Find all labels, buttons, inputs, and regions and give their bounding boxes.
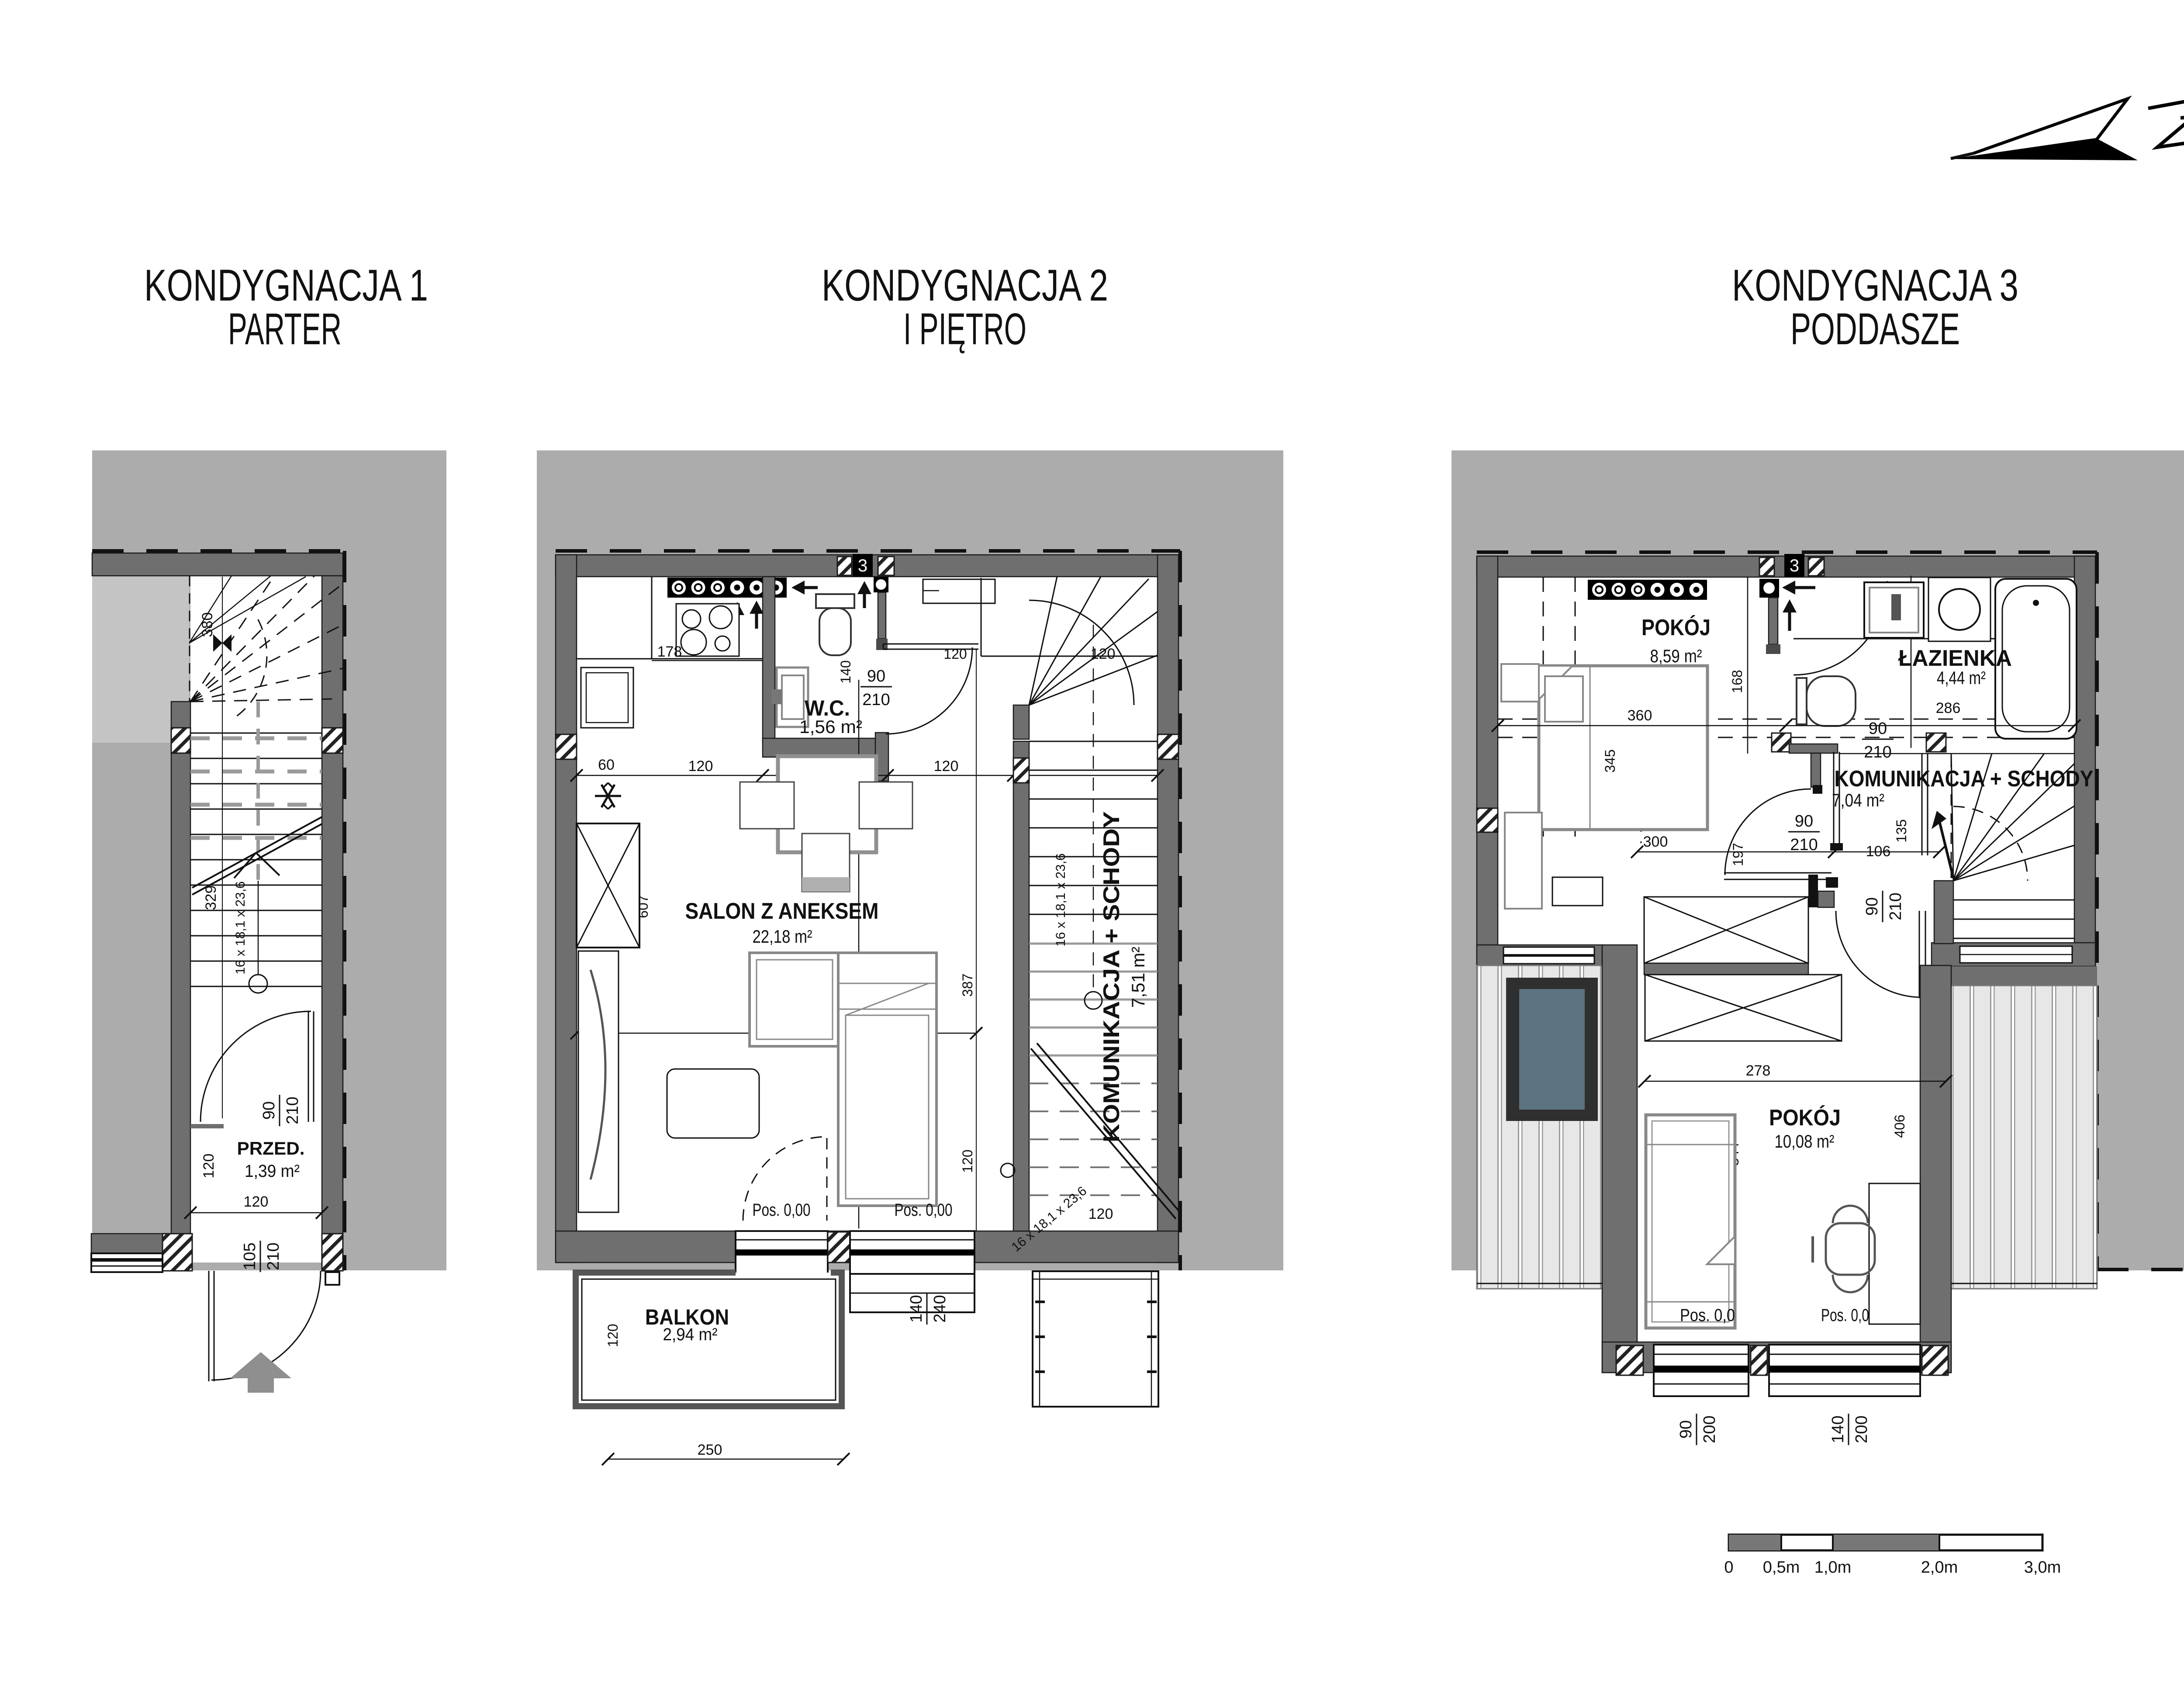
svg-text:10,08 m²: 10,08 m²	[1775, 1131, 1835, 1152]
svg-text:7,51 m²: 7,51 m²	[1128, 947, 1148, 1008]
svg-text:I PIĘTRO: I PIĘTRO	[903, 304, 1026, 354]
svg-text:380: 380	[199, 612, 216, 637]
svg-text:90: 90	[1795, 812, 1813, 830]
svg-text:300: 300	[1643, 834, 1668, 850]
svg-text:120: 120	[244, 1193, 269, 1210]
svg-text:60: 60	[598, 757, 615, 773]
svg-text:KOMUNIKACJA + SCHODY: KOMUNIKACJA + SCHODY	[1835, 766, 2094, 792]
svg-text:PARTER: PARTER	[228, 304, 342, 354]
svg-text:387: 387	[960, 973, 975, 996]
svg-text:KOMUNIKACJA + SCHODY: KOMUNIKACJA + SCHODY	[1099, 811, 1124, 1142]
svg-text:120: 120	[1091, 646, 1116, 662]
svg-text:140: 140	[1829, 1415, 1847, 1443]
svg-text:250: 250	[698, 1442, 722, 1458]
svg-text:240: 240	[931, 1295, 949, 1322]
svg-text:0: 0	[1724, 1558, 1733, 1577]
svg-text:286: 286	[1936, 700, 1961, 716]
svg-text:PRZED.: PRZED.	[237, 1138, 305, 1159]
svg-text:SALON Z ANEKSEM: SALON Z ANEKSEM	[685, 899, 879, 924]
svg-text:105: 105	[241, 1242, 259, 1270]
svg-text:3,0m: 3,0m	[2024, 1558, 2061, 1577]
svg-text:7,04 m²: 7,04 m²	[1832, 790, 1884, 810]
svg-text:210: 210	[264, 1242, 283, 1270]
svg-text:16 x 18,1 x 23,6: 16 x 18,1 x 23,6	[233, 881, 248, 975]
svg-text:120: 120	[688, 758, 713, 775]
svg-text:200: 200	[1700, 1415, 1719, 1443]
svg-text:329: 329	[203, 886, 219, 910]
svg-text:90: 90	[260, 1101, 278, 1120]
svg-text:106: 106	[1866, 843, 1891, 860]
svg-text:278: 278	[1746, 1062, 1771, 1079]
svg-text:135: 135	[1894, 819, 1909, 842]
svg-text:4,44 m²: 4,44 m²	[1937, 668, 1986, 688]
svg-text:90: 90	[1863, 897, 1881, 916]
svg-text:120: 120	[943, 646, 967, 662]
svg-text:140: 140	[907, 1295, 926, 1322]
svg-text:Pos. 0,0: Pos. 0,0	[1821, 1306, 1869, 1325]
svg-text:Pos. 0,00: Pos. 0,00	[753, 1200, 811, 1220]
svg-text:0,5m: 0,5m	[1763, 1558, 1800, 1577]
svg-text:345: 345	[1602, 749, 1618, 772]
svg-text:90: 90	[1869, 720, 1887, 738]
svg-text:16 x 18,1 x 23,6: 16 x 18,1 x 23,6	[1054, 853, 1068, 947]
svg-text:1,0m: 1,0m	[1814, 1558, 1851, 1577]
svg-text:120: 120	[200, 1154, 217, 1179]
svg-text:120: 120	[605, 1324, 621, 1347]
svg-text:197: 197	[1730, 843, 1746, 866]
svg-text:210: 210	[283, 1097, 302, 1124]
svg-text:90: 90	[1677, 1420, 1695, 1439]
svg-text:406: 406	[1892, 1114, 1908, 1138]
svg-text:120: 120	[960, 1149, 975, 1173]
svg-text:POKÓJ: POKÓJ	[1769, 1105, 1841, 1131]
svg-text:210: 210	[862, 691, 890, 709]
svg-text:178: 178	[657, 643, 682, 660]
svg-text:22,18 m²: 22,18 m²	[753, 926, 812, 947]
svg-text:210: 210	[1864, 743, 1891, 761]
svg-text:2,0m: 2,0m	[1921, 1558, 1958, 1577]
svg-text:1,39 m²: 1,39 m²	[245, 1162, 300, 1181]
svg-text:Pos. 0,0: Pos. 0,0	[1680, 1306, 1735, 1325]
svg-text:3: 3	[858, 556, 867, 575]
svg-text:POKÓJ: POKÓJ	[1641, 615, 1711, 640]
svg-text:360: 360	[1628, 707, 1652, 724]
svg-text:200: 200	[1852, 1415, 1871, 1443]
svg-text:120: 120	[934, 758, 959, 775]
svg-text:90: 90	[867, 667, 885, 685]
svg-text:120: 120	[1089, 1206, 1113, 1222]
svg-text:210: 210	[1887, 892, 1905, 920]
svg-text:3: 3	[1790, 556, 1799, 575]
svg-text:140: 140	[838, 660, 854, 683]
svg-text:210: 210	[1790, 836, 1818, 854]
svg-text:KONDYGNACJA 2: KONDYGNACJA 2	[822, 260, 1108, 310]
svg-text:KONDYGNACJA 3: KONDYGNACJA 3	[1732, 260, 2018, 310]
svg-text:2,94 m²: 2,94 m²	[663, 1325, 718, 1344]
svg-text:Pos. 0,00: Pos. 0,00	[895, 1200, 953, 1220]
svg-text:PODDASZE: PODDASZE	[1790, 304, 1960, 354]
svg-text:KONDYGNACJA 1: KONDYGNACJA 1	[144, 260, 428, 310]
svg-text:1,56 m²: 1,56 m²	[799, 716, 862, 737]
svg-text:8,59 m²: 8,59 m²	[1650, 646, 1702, 666]
svg-text:168: 168	[1729, 670, 1745, 693]
